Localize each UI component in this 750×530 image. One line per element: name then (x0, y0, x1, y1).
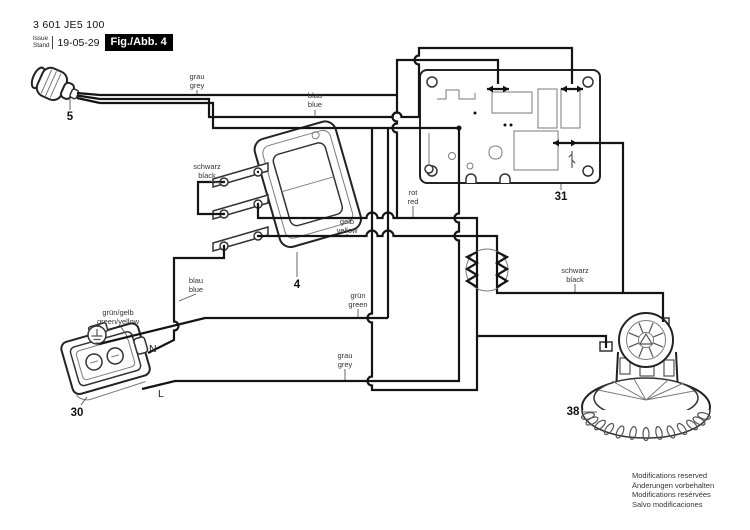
vacuum-motor (581, 313, 711, 441)
board-notch (466, 174, 476, 183)
modifications-notice: Modifications reserved Änderungen vorbeh… (632, 471, 714, 509)
wire-label-grey-top: grau grey (189, 73, 204, 90)
ref-pcb: 31 (555, 191, 568, 203)
earth-symbol (88, 326, 106, 344)
ref-motor: 38 (567, 406, 580, 418)
wire-yellow (258, 231, 663, 323)
wire-label-blue-top: blau blue (308, 92, 322, 109)
ref-switch: 4 (294, 279, 300, 291)
motor-rim (582, 410, 710, 438)
issue-stand-label: Issue Stand (33, 36, 53, 50)
suppression-ring (466, 249, 508, 291)
wire-blue-neutral (148, 246, 224, 353)
wire-label-grey-bottom: grau grey (337, 352, 352, 369)
wire-label-red: rot red (408, 189, 419, 206)
issue-date: 19-05-29 (57, 37, 99, 49)
wire-label-green-yellow: grün/gelb green/yellow (97, 309, 139, 326)
title-block: 3 601 JE5 100 Issue Stand 19-05-29 Fig./… (33, 19, 173, 51)
circuit-board (420, 70, 600, 183)
wire-label-black-switch: schwarz black (193, 163, 221, 180)
wire-label-yellow: gelb yellow (337, 218, 358, 235)
wire-label-blue-bottom: blau blue (189, 277, 203, 294)
power-plug (28, 62, 84, 109)
wire-label-black-motor: schwarz black (561, 267, 589, 284)
line-terminal-label: L (158, 388, 164, 400)
ref-plug: 5 (67, 111, 73, 123)
board-notch (500, 174, 510, 183)
figure-badge: Fig./Abb. 4 (105, 34, 173, 51)
ref-socket: 30 (71, 407, 84, 419)
wire-terminal-dot (457, 126, 462, 131)
wire-to-board (100, 103, 459, 128)
diagram-artwork (0, 0, 750, 530)
wire-label-green: grün green (348, 292, 367, 309)
wiring-diagram-canvas: 3 601 JE5 100 Issue Stand 19-05-29 Fig./… (0, 0, 750, 530)
plug-cable (77, 93, 100, 103)
part-number: 3 601 JE5 100 (33, 19, 173, 31)
motor-fan-inlet (619, 313, 673, 367)
neutral-terminal-label: N (149, 343, 157, 355)
appliance-socket (57, 313, 156, 403)
